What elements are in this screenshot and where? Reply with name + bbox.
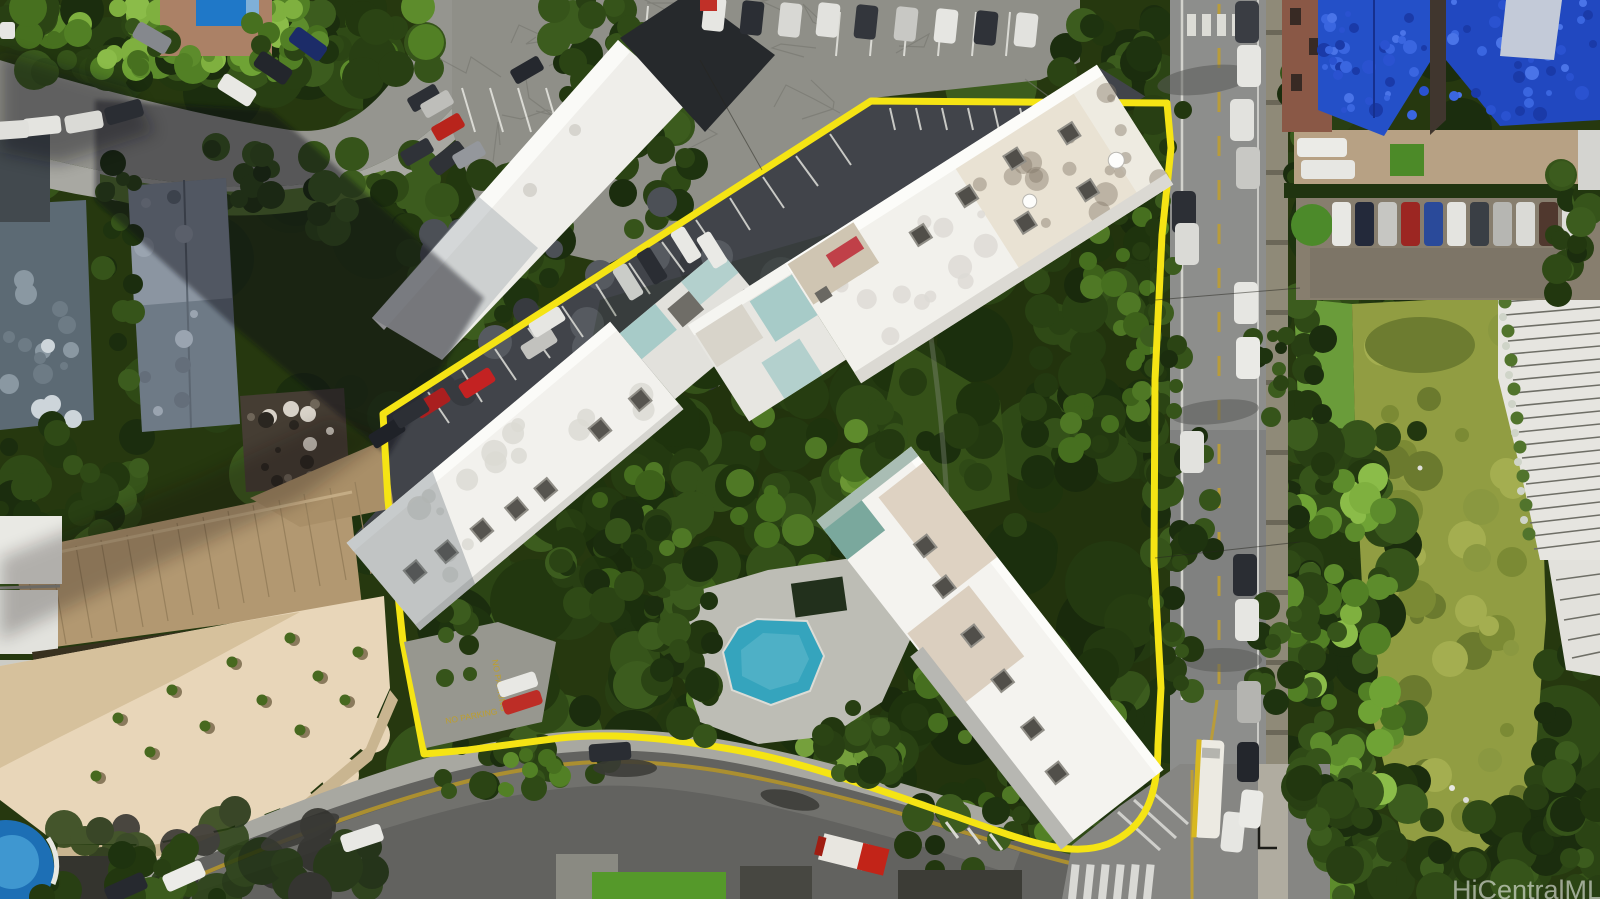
svg-text:HiCentralMLS: HiCentralMLS [1452, 875, 1600, 899]
